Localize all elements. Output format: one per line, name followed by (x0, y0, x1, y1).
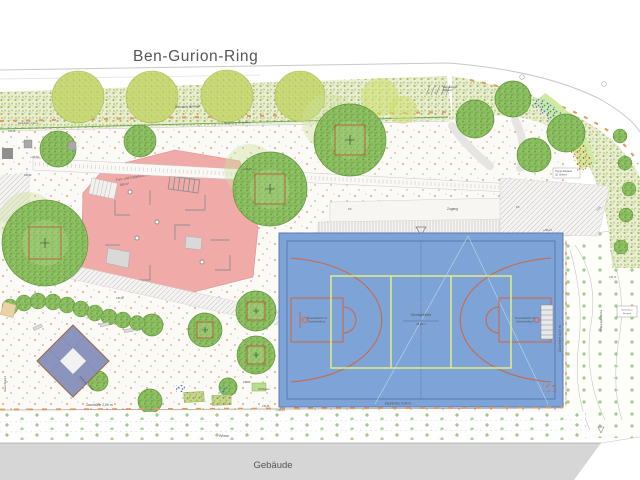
lamp-post-icon (520, 75, 525, 80)
tree-icon (456, 100, 494, 138)
building-footprint (0, 443, 601, 480)
garden-house-icon (617, 306, 637, 317)
tree-icon (52, 71, 104, 123)
stairs-label-2: (11 Stufen) (555, 174, 567, 177)
court-fence-bottom-label: Zaunhöhe 4,00 m (385, 402, 412, 406)
tree-icon (495, 81, 531, 117)
tree-icon (126, 71, 178, 123)
court-stairs-icon (541, 305, 553, 339)
tree-icon (547, 114, 585, 152)
elevation-label: 136,50 (116, 297, 124, 300)
site-plan-drawing: Ben-Gurion-Ring Pflanzung Bestand Stützm… (0, 0, 640, 480)
tree-canopy-icon (389, 96, 417, 124)
beds-label: Hochbeete (258, 388, 270, 391)
raised-bed-icon (212, 395, 231, 406)
garden-house-label-2: Bestand (623, 312, 632, 315)
elevation-label: +136,15 (276, 409, 285, 412)
fence-left-label: Zaunhöhe 2,00 m (86, 403, 113, 407)
wall-bestand-label: Mauer Bestand (4, 375, 7, 392)
fence-top-label: Zaunhöhe 1,00 m (18, 121, 38, 125)
tree-framed-icon (236, 291, 276, 331)
south-edge: Zaunhöhe 2,00 m Wiese Gebäude (0, 403, 640, 480)
right-hoop-label-1: Streetballkorb mit (515, 316, 535, 320)
tree-framed-icon (2, 200, 88, 286)
tree-framed-icon (233, 152, 307, 226)
lamp-post-icon (602, 82, 607, 87)
meadow-label: Wiese (219, 434, 229, 438)
raised-bed-icon (184, 391, 204, 402)
elevation-label: +136,43 (243, 168, 252, 171)
garden-house-label-1: Gartenhaus (621, 309, 633, 312)
court-fence-right-label: Zaunhöhe 4,00 m (558, 325, 562, 352)
right-hoop-label-2: Basketballkorb (516, 320, 534, 324)
court-dimension: 28,00 m (416, 322, 425, 326)
elevation-label: 136,08 (24, 174, 32, 177)
court-center-label: Kleinspielfeld (411, 313, 431, 317)
access-label: Zugang (447, 207, 458, 211)
planting-bed-icon (220, 387, 228, 393)
garage-label: Tiefgaragendecke (599, 309, 603, 332)
elevation-label: +136,56 (30, 156, 39, 159)
tree-framed-icon (314, 104, 386, 176)
planting-bed-icon (176, 385, 185, 392)
left-hoop-label-1: Streetballkorb mit (307, 316, 327, 320)
seat-cube-icon (68, 142, 76, 150)
elevation-label: 136,98 (8, 130, 16, 133)
street-name-label: Ben-Gurion-Ring (133, 48, 258, 65)
elevation-label: 136,36 (262, 405, 270, 408)
left-hoop-label-2: Basketballkorb (308, 320, 326, 324)
utility-box-icon (2, 148, 13, 159)
building-label: Gebäude (253, 460, 292, 471)
elevation-label: 136,28 (243, 381, 251, 384)
tree-icon (517, 138, 551, 172)
access-path (330, 198, 505, 222)
tree-framed-icon (188, 313, 222, 347)
elevation-label: +136,24 (543, 229, 552, 232)
tree-framed-icon (237, 336, 275, 374)
tree-icon (201, 70, 253, 122)
tree-icon (124, 125, 156, 157)
site-plan: Ben-Gurion-Ring Pflanzung Bestand Stützm… (0, 0, 640, 480)
planting-bed-icon (543, 384, 557, 392)
meadow-strip (0, 412, 585, 443)
sports-court: Streetballkorb mit Basketballkorb Street… (279, 233, 566, 407)
bike-label-2: Bestand (443, 89, 452, 92)
seat-cube-icon (24, 140, 32, 148)
play-structure (185, 236, 202, 250)
elevation-label: 136,74 (609, 276, 617, 279)
